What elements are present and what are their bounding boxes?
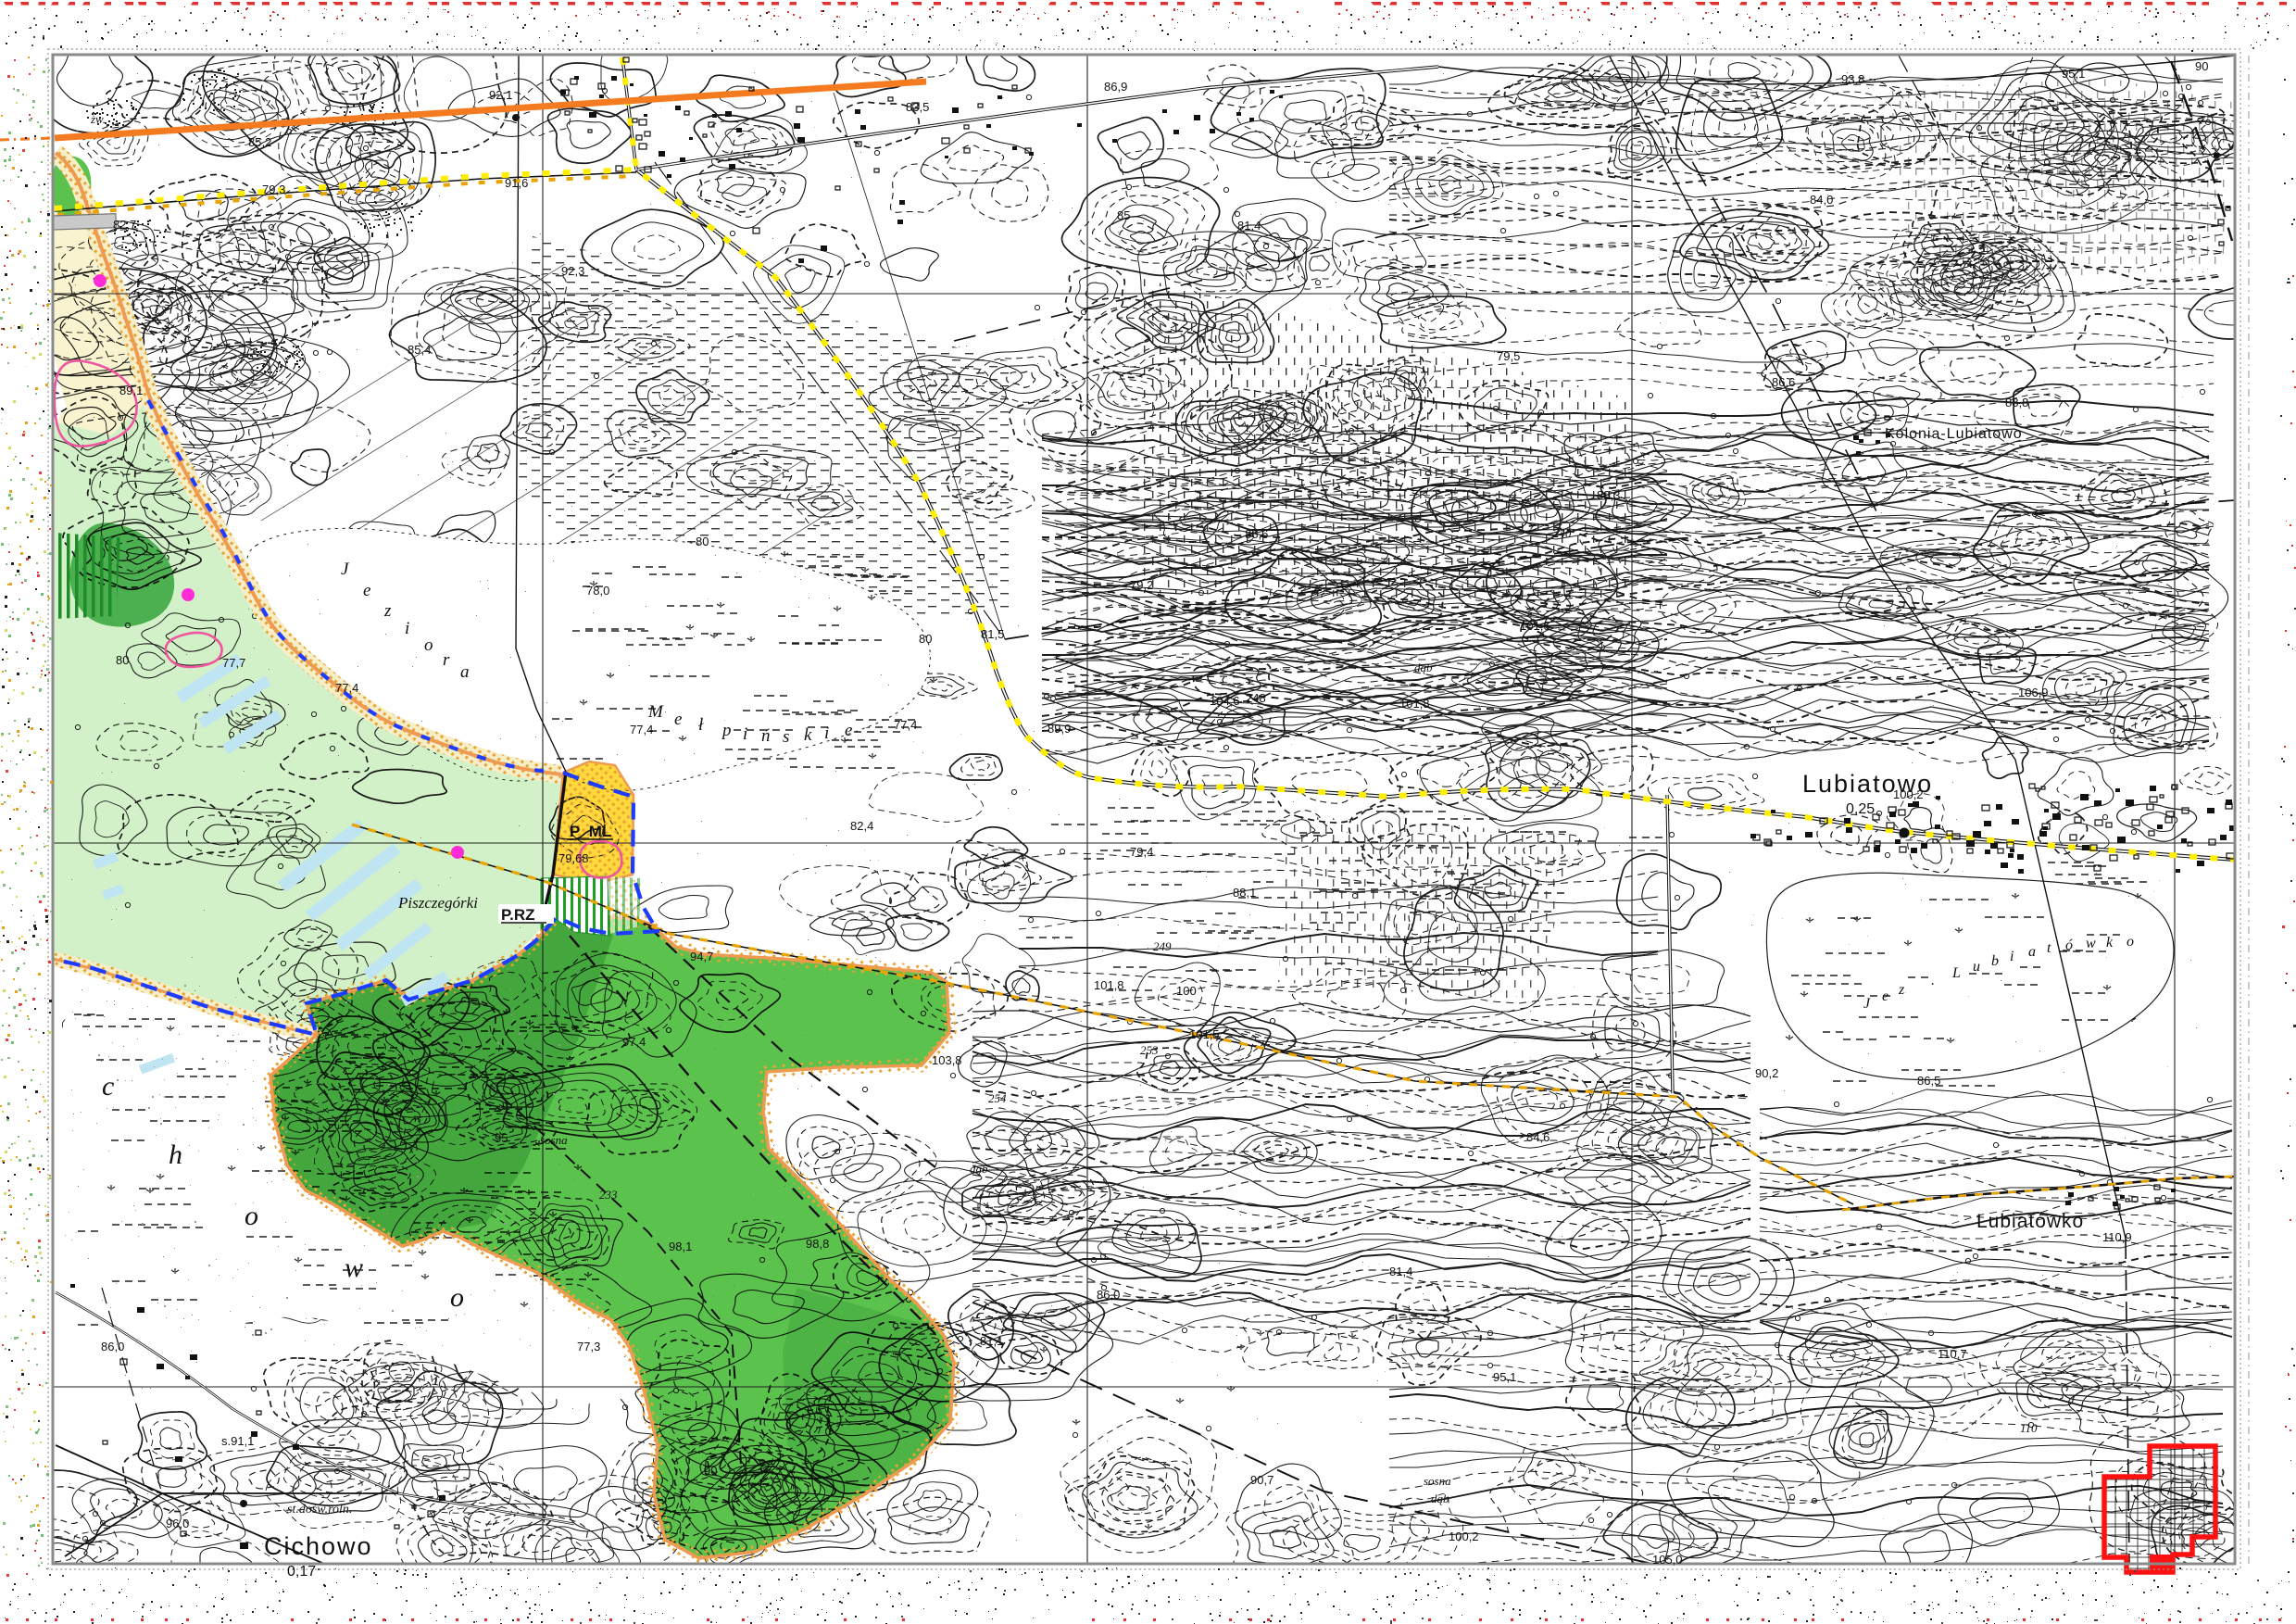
- svg-text:żw.: żw.: [90, 112, 106, 126]
- svg-text:M: M: [647, 702, 664, 722]
- svg-text:P.RZ: P.RZ: [501, 906, 535, 924]
- svg-text:o: o: [245, 1201, 258, 1231]
- svg-text:.: .: [1931, 973, 1935, 988]
- svg-text:248: 248: [1246, 691, 1266, 705]
- svg-text:86,6: 86,6: [1772, 375, 1795, 389]
- svg-text:94,7: 94,7: [690, 950, 713, 963]
- svg-text:77,7: 77,7: [222, 656, 245, 670]
- svg-text:dąb: dąb: [970, 1162, 988, 1176]
- svg-text:110: 110: [2020, 1421, 2038, 1435]
- svg-text:c: c: [102, 1071, 114, 1102]
- svg-text:97,4: 97,4: [622, 1035, 646, 1049]
- svg-text:84,0: 84,0: [1810, 193, 1833, 207]
- svg-text:z: z: [383, 601, 392, 621]
- svg-text:77,4: 77,4: [335, 681, 358, 695]
- svg-text:r: r: [443, 650, 450, 670]
- svg-text:95,1: 95,1: [2062, 67, 2085, 81]
- svg-text:Cichowo: Cichowo: [264, 1532, 373, 1560]
- svg-text:85: 85: [1117, 208, 1130, 222]
- svg-text:77,4: 77,4: [894, 718, 917, 732]
- svg-text:88,3: 88,3: [1597, 488, 1620, 502]
- svg-text:sosna: sosna: [540, 1133, 568, 1147]
- svg-text:98,8: 98,8: [806, 1237, 829, 1251]
- svg-text:79,2: 79,2: [1130, 578, 1153, 592]
- svg-text:w: w: [345, 1253, 363, 1283]
- svg-text:89,1: 89,1: [119, 384, 143, 397]
- svg-text:96,0: 96,0: [166, 1517, 189, 1530]
- svg-text:i: i: [2010, 949, 2014, 964]
- svg-text:w: w: [2086, 936, 2096, 951]
- svg-text:83,5: 83,5: [906, 100, 929, 114]
- svg-text:e: e: [674, 710, 682, 729]
- svg-text:106,9: 106,9: [2018, 686, 2049, 699]
- svg-text:88,6: 88,6: [1245, 527, 1268, 541]
- svg-text:79,3: 79,3: [262, 183, 285, 196]
- svg-text:79,68: 79,68: [558, 851, 589, 865]
- svg-text:90,7: 90,7: [1250, 1473, 1273, 1487]
- svg-text:L: L: [1951, 965, 1961, 981]
- svg-text:98,1: 98,1: [669, 1240, 692, 1253]
- svg-text:ń: ń: [761, 726, 771, 746]
- svg-text:77,4: 77,4: [630, 723, 653, 736]
- svg-text:233: 233: [599, 1188, 618, 1202]
- svg-text:i: i: [824, 724, 829, 743]
- svg-text:240: 240: [1553, 526, 1572, 540]
- svg-text:253: 253: [1140, 1043, 1159, 1057]
- svg-text:110,7: 110,7: [1938, 1347, 1967, 1361]
- svg-text:101,5: 101,5: [1189, 1027, 1220, 1041]
- svg-text:u: u: [1973, 959, 1980, 975]
- svg-text:k: k: [804, 725, 812, 745]
- svg-text:o: o: [2127, 934, 2134, 950]
- svg-text:p: p: [721, 721, 732, 740]
- svg-text:84,6: 84,6: [1526, 1130, 1549, 1144]
- svg-text:103,8: 103,8: [932, 1053, 962, 1067]
- svg-text:a: a: [2028, 944, 2036, 960]
- svg-text:101,6: 101,6: [1520, 619, 1550, 633]
- svg-text:101,8: 101,8: [1399, 697, 1430, 711]
- svg-text:ó: ó: [2065, 938, 2073, 953]
- svg-text:89,9: 89,9: [1048, 722, 1071, 736]
- svg-text:81,4: 81,4: [1237, 219, 1261, 233]
- svg-text:86,9: 86,9: [1104, 80, 1127, 94]
- svg-text:st.dośw.roln.: st.dośw.roln.: [287, 1503, 352, 1517]
- svg-text:90: 90: [2195, 59, 2208, 73]
- svg-text:e: e: [363, 581, 370, 600]
- svg-text:h: h: [169, 1139, 182, 1170]
- svg-text:k: k: [2106, 935, 2114, 950]
- svg-text:J: J: [1863, 996, 1871, 1012]
- svg-text:100: 100: [1176, 984, 1197, 998]
- svg-text:92,1: 92,1: [489, 88, 512, 102]
- svg-text:95,1: 95,1: [1493, 1370, 1516, 1384]
- svg-text:a: a: [460, 662, 470, 682]
- svg-text:z: z: [1898, 982, 1905, 998]
- svg-text:o: o: [424, 636, 433, 655]
- svg-text:85,2: 85,2: [248, 135, 271, 149]
- svg-text:77,3: 77,3: [577, 1340, 600, 1353]
- svg-text:95: 95: [495, 1131, 508, 1145]
- svg-text:81,1: 81,1: [980, 1334, 1003, 1348]
- svg-text:Kolonia-Lubiatowo: Kolonia-Lubiatowo: [1885, 426, 2023, 442]
- svg-text:e: e: [1882, 988, 1888, 1004]
- svg-text:o: o: [450, 1282, 464, 1313]
- svg-text:i: i: [743, 724, 747, 744]
- svg-text:81,4: 81,4: [1389, 1265, 1412, 1278]
- svg-text:Lubiatówko: Lubiatówko: [1976, 1211, 2084, 1232]
- svg-text:104,6: 104,6: [1210, 694, 1240, 708]
- svg-text:86,5: 86,5: [1917, 1074, 1940, 1088]
- svg-text:ł: ł: [698, 715, 704, 735]
- svg-text:dąb: dąb: [1431, 1492, 1449, 1505]
- svg-text:105,0: 105,0: [1652, 1553, 1683, 1567]
- svg-text:86,0: 86,0: [1097, 1288, 1120, 1302]
- svg-text:82,7: 82,7: [113, 218, 136, 232]
- svg-text:249: 249: [1153, 939, 1172, 953]
- svg-text:81,5: 81,5: [981, 627, 1004, 641]
- svg-text:t: t: [2047, 940, 2051, 956]
- svg-text:92,3: 92,3: [561, 264, 584, 278]
- svg-text:e: e: [845, 721, 852, 740]
- svg-text:93,8: 93,8: [1841, 72, 1864, 86]
- svg-text:90: 90: [704, 1464, 717, 1478]
- svg-text:88,1: 88,1: [1233, 886, 1256, 900]
- svg-text:86,0: 86,0: [101, 1340, 124, 1353]
- svg-text:sosna: sosna: [1424, 1474, 1451, 1488]
- svg-text:b: b: [1991, 953, 1999, 969]
- svg-text:80: 80: [116, 653, 129, 667]
- svg-text:110,9: 110,9: [2102, 1230, 2132, 1244]
- svg-text:78,0: 78,0: [586, 584, 609, 598]
- svg-text:88,8: 88,8: [2005, 396, 2028, 409]
- svg-text:100,2: 100,2: [1449, 1530, 1479, 1543]
- svg-text:s.91,1: s.91,1: [221, 1434, 254, 1448]
- svg-text:85,4: 85,4: [408, 343, 431, 357]
- svg-text:s: s: [783, 727, 789, 747]
- svg-text:91,6: 91,6: [505, 176, 528, 190]
- svg-text:P_ML: P_ML: [570, 823, 611, 840]
- svg-text:Lubiatowo: Lubiatowo: [1802, 770, 1933, 798]
- svg-text:101,8: 101,8: [1094, 978, 1124, 992]
- svg-text:90,2: 90,2: [1755, 1066, 1778, 1080]
- svg-text:i: i: [405, 619, 409, 638]
- svg-text:79,4: 79,4: [1130, 845, 1153, 859]
- svg-text:254: 254: [988, 1091, 1007, 1105]
- svg-text:82,4: 82,4: [850, 819, 873, 833]
- svg-text:dąb: dąb: [1414, 661, 1433, 674]
- svg-text:0,25: 0,25: [1846, 801, 1875, 817]
- svg-text:80: 80: [919, 632, 932, 646]
- svg-text:80: 80: [696, 535, 709, 548]
- svg-text:Piszczegórki: Piszczegórki: [397, 894, 478, 912]
- svg-text:0,17: 0,17: [287, 1564, 316, 1580]
- svg-text:79,5: 79,5: [1497, 349, 1520, 363]
